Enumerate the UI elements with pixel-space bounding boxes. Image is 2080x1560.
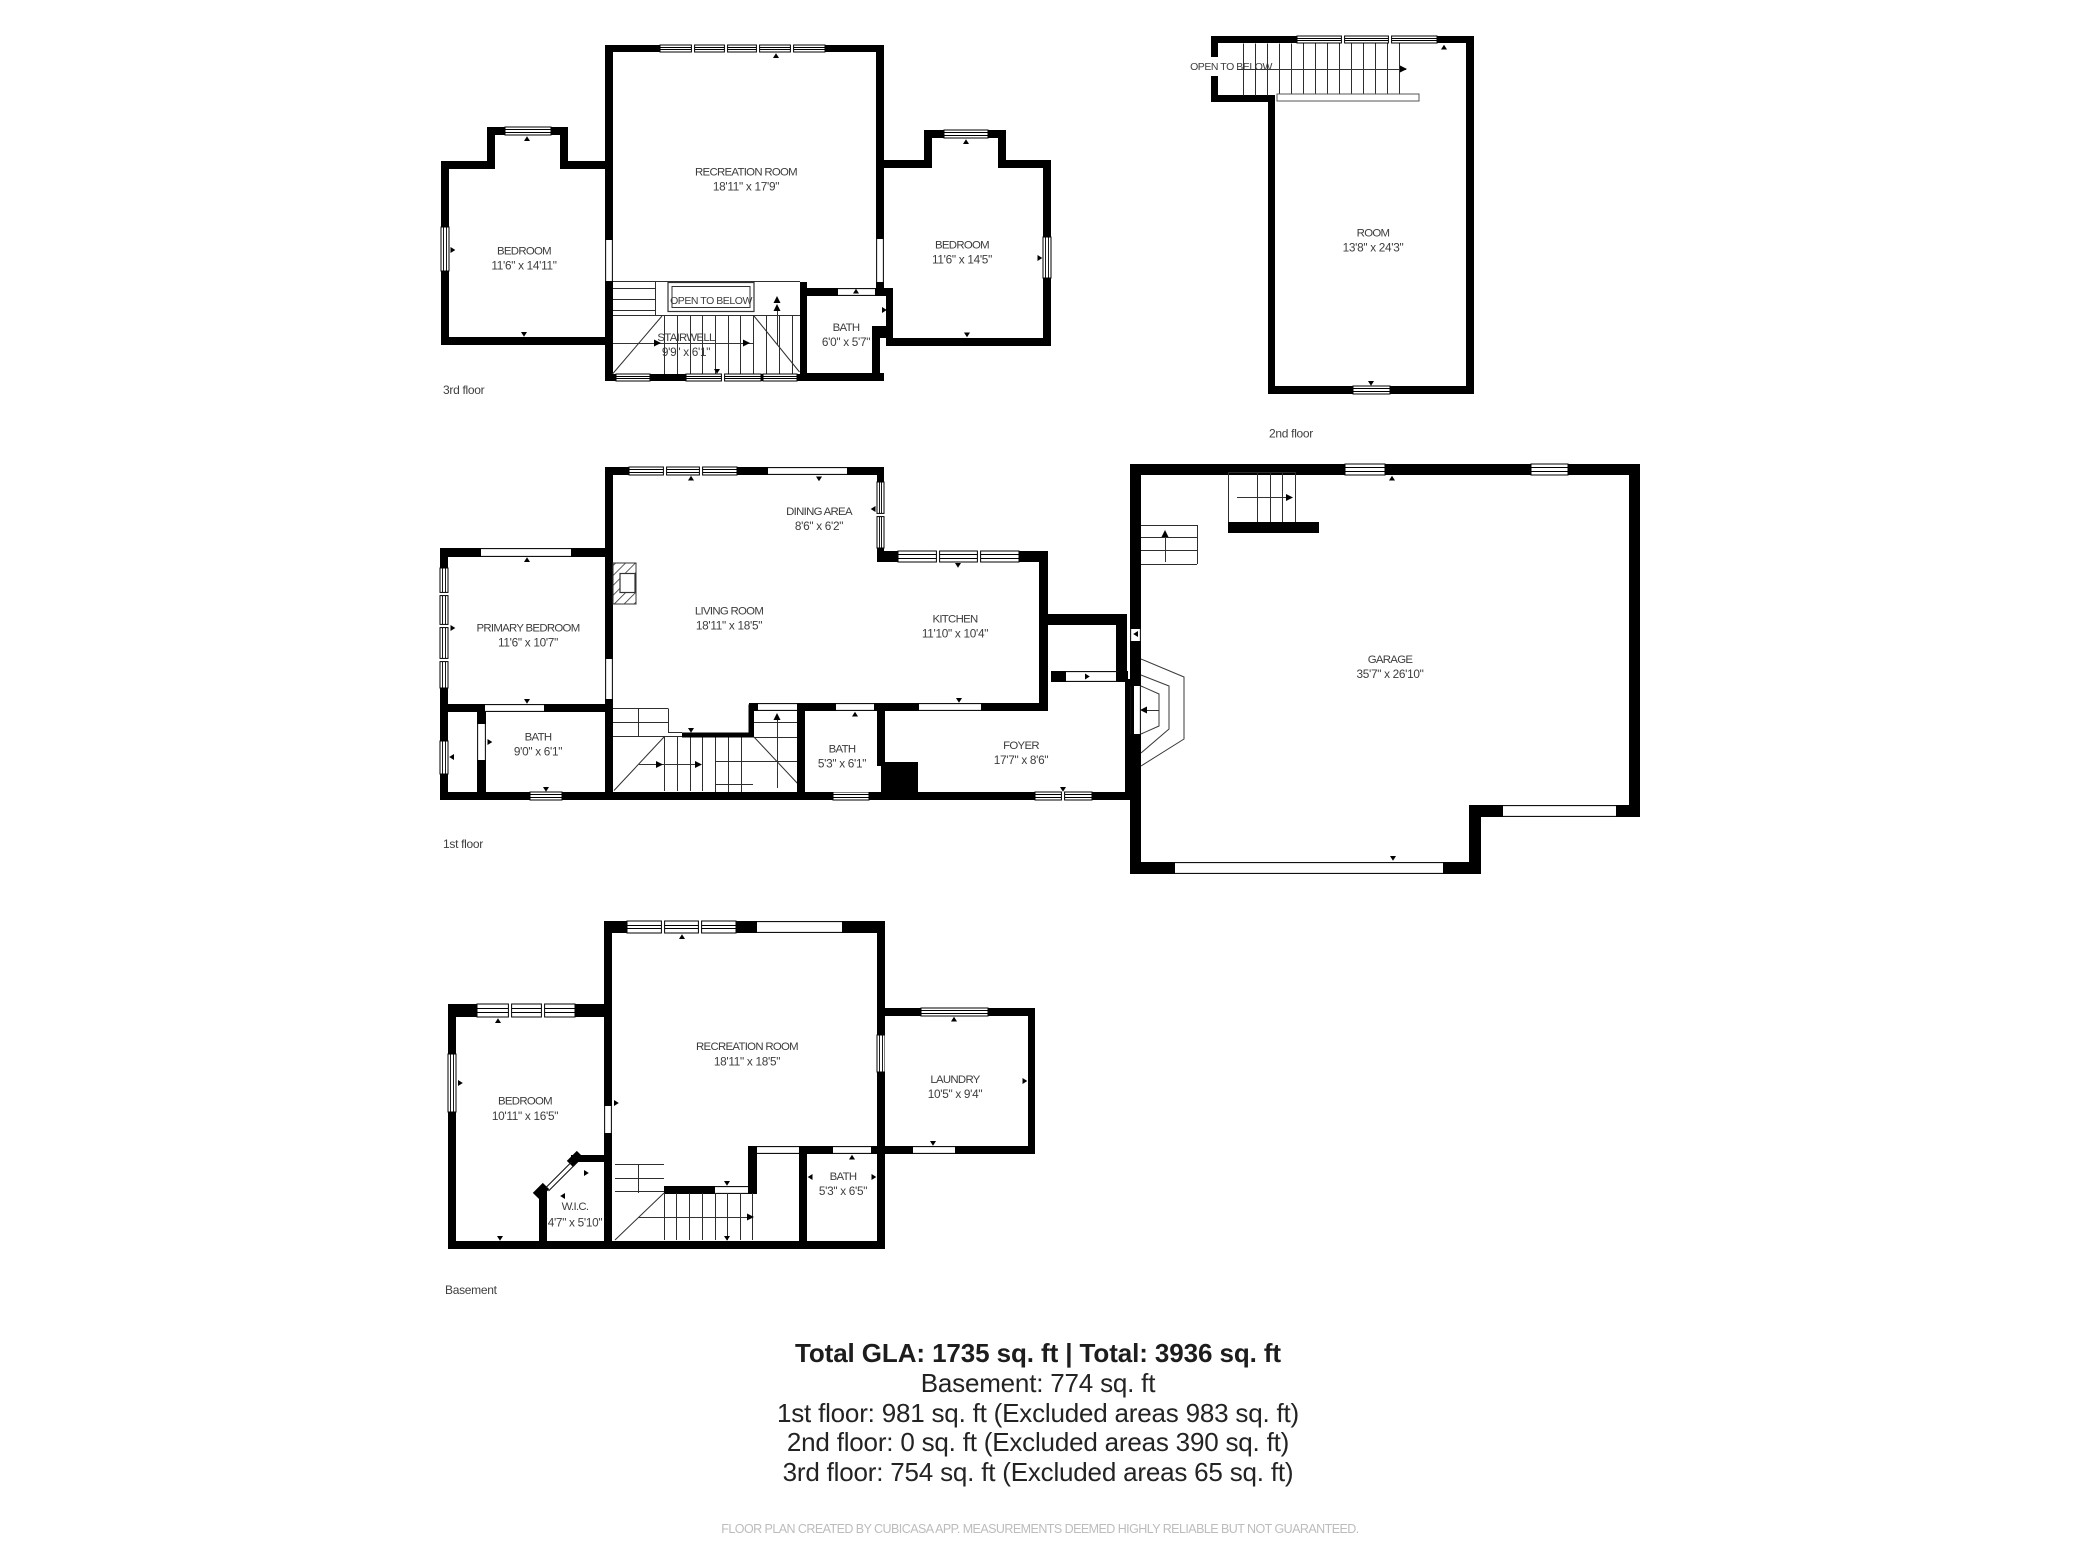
svg-text:GARAGE: GARAGE xyxy=(1368,654,1414,666)
svg-text:W.I.C.: W.I.C. xyxy=(562,1201,589,1213)
svg-text:PRIMARY BEDROOM: PRIMARY BEDROOM xyxy=(476,623,579,635)
svg-text:11'6" x 14'5": 11'6" x 14'5" xyxy=(932,253,992,267)
svg-text:RECREATION ROOM: RECREATION ROOM xyxy=(696,1041,798,1053)
svg-text:DINING AREA: DINING AREA xyxy=(786,506,853,518)
svg-text:ROOM: ROOM xyxy=(1357,228,1390,240)
svg-text:BEDROOM: BEDROOM xyxy=(498,1096,552,1108)
svg-text:BATH: BATH xyxy=(830,1171,857,1183)
svg-text:8'6" x 6'2": 8'6" x 6'2" xyxy=(795,519,843,533)
svg-text:1st floor: 1st floor xyxy=(443,837,483,851)
svg-text:4'7" x 5'10": 4'7" x 5'10" xyxy=(548,1216,603,1230)
svg-text:2nd floor: 2nd floor xyxy=(1269,427,1313,441)
svg-text:18'11" x 18'5": 18'11" x 18'5" xyxy=(696,619,762,633)
svg-text:3rd floor: 754 sq. ft (Exclude: 3rd floor: 754 sq. ft (Excluded areas 65… xyxy=(783,1457,1294,1487)
svg-text:5'3" x 6'1": 5'3" x 6'1" xyxy=(818,757,866,771)
svg-text:6'0" x 5'7": 6'0" x 5'7" xyxy=(822,335,870,349)
svg-text:Total GLA: 1735 sq. ft | Total: Total GLA: 1735 sq. ft | Total: 3936 sq.… xyxy=(795,1338,1281,1368)
svg-text:3rd floor: 3rd floor xyxy=(443,383,485,397)
svg-text:BATH: BATH xyxy=(525,732,552,744)
svg-text:BATH: BATH xyxy=(833,322,860,334)
svg-text:OPEN TO BELOW: OPEN TO BELOW xyxy=(1190,61,1272,73)
svg-text:KITCHEN: KITCHEN xyxy=(932,614,978,626)
svg-text:11'6" x 10'7": 11'6" x 10'7" xyxy=(498,636,558,650)
svg-text:1st floor: 981 sq. ft (Exclude: 1st floor: 981 sq. ft (Excluded areas 98… xyxy=(777,1398,1299,1428)
svg-text:5'3" x 6'5": 5'3" x 6'5" xyxy=(819,1184,867,1198)
svg-text:LAUNDRY: LAUNDRY xyxy=(930,1074,980,1086)
svg-text:Basement: Basement xyxy=(445,1283,498,1297)
svg-text:9'0" x 6'1": 9'0" x 6'1" xyxy=(514,745,562,759)
svg-text:FLOOR PLAN CREATED BY CUBICASA: FLOOR PLAN CREATED BY CUBICASA APP. MEAS… xyxy=(721,1522,1358,1536)
svg-text:FOYER: FOYER xyxy=(1003,740,1039,752)
svg-text:18'11" x 18'5": 18'11" x 18'5" xyxy=(714,1055,780,1069)
svg-text:BEDROOM: BEDROOM xyxy=(497,246,551,258)
svg-text:10'5" x 9'4": 10'5" x 9'4" xyxy=(928,1087,983,1101)
svg-text:13'8" x 24'3": 13'8" x 24'3" xyxy=(1343,241,1404,255)
svg-text:2nd floor: 0 sq. ft (Excluded: 2nd floor: 0 sq. ft (Excluded areas 390 … xyxy=(787,1427,1289,1457)
svg-text:Basement: 774 sq. ft: Basement: 774 sq. ft xyxy=(921,1368,1156,1398)
svg-text:18'11" x 17'9": 18'11" x 17'9" xyxy=(713,180,779,194)
svg-text:35'7" x 26'10": 35'7" x 26'10" xyxy=(1356,667,1423,681)
svg-text:BEDROOM: BEDROOM xyxy=(935,240,989,252)
svg-text:11'10" x 10'4": 11'10" x 10'4" xyxy=(922,627,988,641)
svg-text:OPEN TO BELOW: OPEN TO BELOW xyxy=(670,295,752,307)
svg-text:BATH: BATH xyxy=(829,744,856,756)
svg-text:17'7" x 8'6": 17'7" x 8'6" xyxy=(994,753,1049,767)
svg-text:11'6" x 14'11": 11'6" x 14'11" xyxy=(491,259,556,273)
svg-text:STAIRWELL: STAIRWELL xyxy=(657,332,715,344)
svg-text:RECREATION ROOM: RECREATION ROOM xyxy=(695,167,797,179)
svg-text:10'11" x 16'5": 10'11" x 16'5" xyxy=(492,1109,558,1123)
svg-text:LIVING ROOM: LIVING ROOM xyxy=(695,606,763,618)
